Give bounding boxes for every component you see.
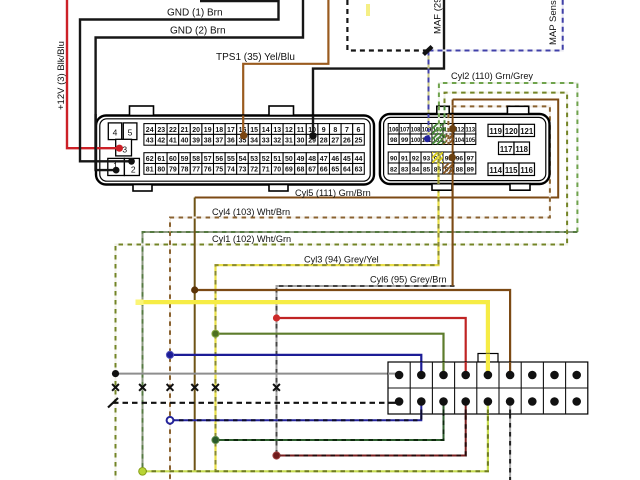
svg-text:91: 91 [401,155,409,162]
svg-text:50: 50 [285,156,293,163]
svg-text:89: 89 [467,166,475,173]
svg-text:82: 82 [390,166,398,173]
svg-text:7: 7 [345,127,349,134]
svg-text:54: 54 [239,156,247,163]
svg-text:Cyl4 (103) Wht/Brn: Cyl4 (103) Wht/Brn [212,207,290,217]
svg-text:Cyl5 (111) Grn/Brn: Cyl5 (111) Grn/Brn [295,188,371,198]
svg-text:88: 88 [456,166,464,173]
svg-text:23: 23 [157,127,165,134]
svg-text:44: 44 [355,156,363,163]
svg-text:45: 45 [343,156,351,163]
svg-text:99: 99 [401,137,409,144]
svg-text:46: 46 [331,156,339,163]
svg-text:GND (2) Brn: GND (2) Brn [170,26,226,37]
svg-text:18: 18 [215,127,223,134]
svg-text:73: 73 [239,167,247,174]
svg-text:69: 69 [285,167,293,174]
svg-text:67: 67 [308,167,316,174]
svg-text:48: 48 [308,156,316,163]
svg-text:8: 8 [333,127,337,134]
svg-text:75: 75 [215,167,223,174]
svg-text:114: 114 [489,166,502,175]
svg-text:2: 2 [131,165,136,175]
svg-text:4: 4 [113,128,118,138]
svg-text:TPS1 (35) Yel/Blu: TPS1 (35) Yel/Blu [216,52,295,63]
svg-text:6: 6 [357,127,361,134]
svg-text:63: 63 [355,167,363,174]
svg-text:Cyl1 (102) Wht/Grn: Cyl1 (102) Wht/Grn [212,234,291,244]
svg-text:24: 24 [146,127,154,134]
svg-text:47: 47 [320,156,328,163]
svg-text:31: 31 [285,138,293,145]
svg-text:41: 41 [169,138,177,145]
svg-text:5: 5 [128,128,133,138]
svg-text:34: 34 [250,138,258,145]
svg-text:78: 78 [181,167,189,174]
svg-text:Cyl3 (94) Grey/Yel: Cyl3 (94) Grey/Yel [304,255,379,265]
svg-text:11: 11 [297,127,305,134]
svg-text:113: 113 [466,126,476,133]
svg-text:60: 60 [169,156,177,163]
svg-text:62: 62 [146,156,154,163]
svg-text:80: 80 [157,167,165,174]
svg-text:96: 96 [456,155,464,162]
svg-text:121: 121 [520,127,534,136]
svg-text:15: 15 [250,127,258,134]
svg-text:26: 26 [343,138,351,145]
svg-text:59: 59 [181,156,189,163]
svg-text:79: 79 [169,167,177,174]
svg-text:84: 84 [412,166,420,173]
svg-text:116: 116 [520,166,533,175]
svg-text:42: 42 [157,138,165,145]
svg-text:32: 32 [273,138,281,145]
svg-text:117: 117 [500,145,513,154]
svg-text:14: 14 [262,127,270,134]
svg-text:105: 105 [466,137,476,144]
svg-text:MAF (29): MAF (29) [433,0,444,34]
svg-text:GND (1) Brn: GND (1) Brn [167,8,223,19]
svg-text:25: 25 [355,138,363,145]
svg-text:38: 38 [204,138,212,145]
svg-text:43: 43 [146,138,154,145]
svg-text:Cyl2 (110) Grn/Grey: Cyl2 (110) Grn/Grey [451,71,533,81]
svg-text:40: 40 [181,138,189,145]
svg-text:22: 22 [169,127,177,134]
svg-text:30: 30 [297,138,305,145]
svg-text:55: 55 [227,156,235,163]
svg-text:92: 92 [412,155,420,162]
svg-text:12: 12 [285,127,293,134]
svg-text:108: 108 [411,126,421,133]
svg-text:70: 70 [273,167,281,174]
svg-text:118: 118 [515,145,528,154]
svg-text:77: 77 [192,167,200,174]
svg-text:61: 61 [157,156,165,163]
svg-text:51: 51 [273,156,281,163]
svg-text:39: 39 [192,138,200,145]
svg-text:83: 83 [401,166,409,173]
svg-text:Cyl6 (95) Grey/Brn: Cyl6 (95) Grey/Brn [370,275,447,285]
svg-text:27: 27 [331,138,339,145]
svg-text:120: 120 [505,127,519,136]
svg-text:104: 104 [455,137,465,144]
svg-text:3: 3 [122,145,127,155]
svg-text:MAP Sensor: MAP Sensor [548,0,559,45]
svg-text:85: 85 [423,166,431,173]
svg-text:17: 17 [227,127,235,134]
svg-text:68: 68 [297,167,305,174]
svg-text:66: 66 [320,167,328,174]
svg-text:19: 19 [204,127,212,134]
svg-text:107: 107 [400,126,410,133]
svg-text:49: 49 [297,156,305,163]
svg-text:13: 13 [273,127,281,134]
svg-text:65: 65 [331,167,339,174]
svg-text:53: 53 [250,156,258,163]
svg-text:57: 57 [204,156,212,163]
svg-text:90: 90 [390,155,398,162]
svg-text:119: 119 [489,127,502,136]
svg-text:98: 98 [390,137,398,144]
svg-text:100: 100 [411,137,421,144]
svg-text:115: 115 [505,166,518,175]
svg-text:74: 74 [227,167,235,174]
svg-text:71: 71 [262,167,270,174]
svg-text:+12V (3) Blk/Blu: +12V (3) Blk/Blu [56,41,67,110]
svg-text:28: 28 [320,138,328,145]
svg-text:109: 109 [422,126,432,133]
svg-text:97: 97 [467,155,475,162]
svg-text:58: 58 [192,156,200,163]
svg-text:20: 20 [192,127,200,134]
svg-text:56: 56 [215,156,223,163]
svg-text:9: 9 [322,127,326,134]
svg-text:72: 72 [250,167,258,174]
svg-text:64: 64 [343,167,351,174]
svg-text:106: 106 [389,126,399,133]
svg-text:36: 36 [227,138,235,145]
svg-text:93: 93 [423,155,431,162]
svg-text:21: 21 [181,127,189,134]
svg-text:81: 81 [146,167,154,174]
svg-text:52: 52 [262,156,270,163]
svg-text:76: 76 [204,167,212,174]
svg-text:37: 37 [215,138,223,145]
svg-text:33: 33 [262,138,270,145]
